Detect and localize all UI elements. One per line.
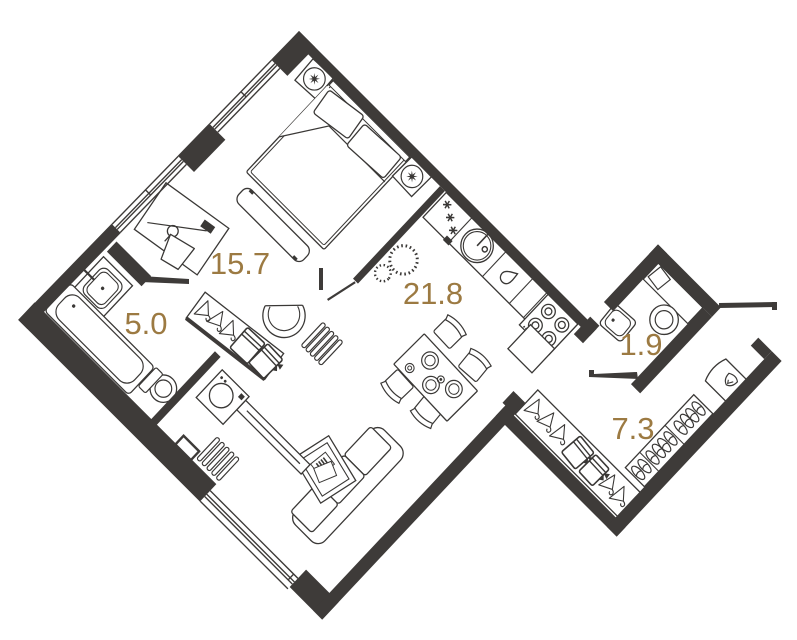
svg-text:1.9: 1.9: [619, 327, 662, 362]
svg-text:5.0: 5.0: [124, 306, 167, 341]
svg-text:7.3: 7.3: [611, 411, 654, 446]
svg-text:21.8: 21.8: [403, 276, 463, 311]
svg-text:15.7: 15.7: [210, 246, 270, 281]
